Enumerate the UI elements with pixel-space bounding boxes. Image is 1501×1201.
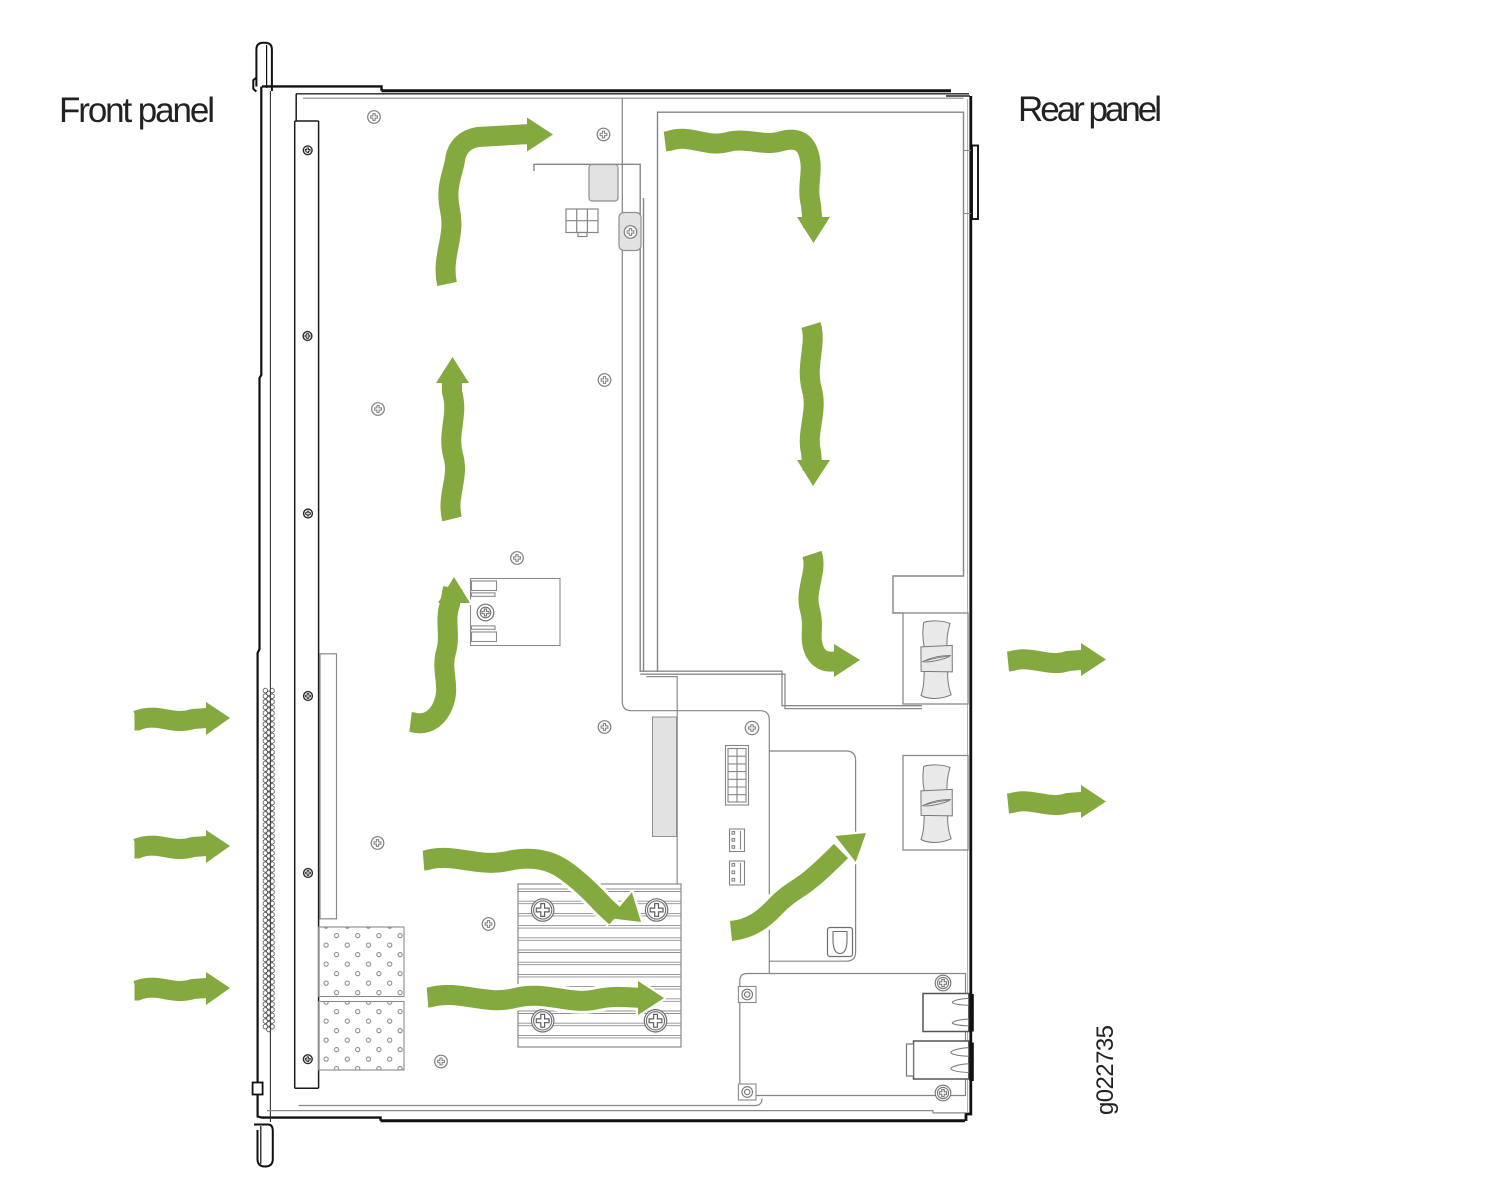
svg-text:g022735: g022735 bbox=[1092, 1025, 1119, 1115]
svg-text:Rear panel: Rear panel bbox=[1018, 90, 1162, 129]
svg-text:Front panel: Front panel bbox=[59, 91, 215, 130]
